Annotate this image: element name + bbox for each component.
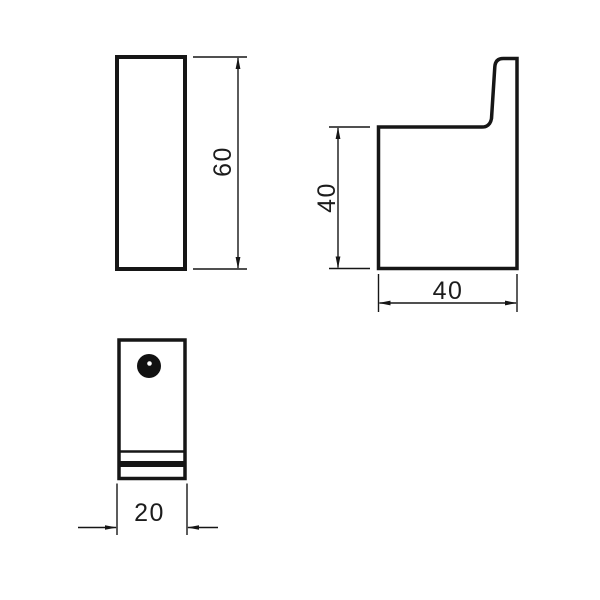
arrowhead-up-icon <box>236 57 241 69</box>
arrowhead-left-icon <box>379 301 391 306</box>
mounting-hole-center <box>147 361 152 366</box>
dimension-label-side-height: 40 <box>313 182 341 213</box>
front-view-outline <box>117 57 185 269</box>
bottom-width-dimension: 20 <box>78 484 218 536</box>
drawing-svg: 60 40 40 <box>0 0 600 600</box>
side-depth-dimension: 40 <box>379 274 518 312</box>
arrowhead-right-icon <box>105 525 117 529</box>
side-view-outline <box>379 59 518 269</box>
arrowhead-right-icon <box>505 301 517 306</box>
side-view: 40 40 <box>313 59 517 313</box>
arrowhead-left-icon <box>187 525 199 529</box>
arrowhead-down-icon <box>236 257 241 269</box>
arrowhead-down-icon <box>336 257 341 269</box>
side-height-dimension: 40 <box>313 127 370 269</box>
front-height-dimension: 60 <box>193 57 247 269</box>
dimension-label-bottom-width: 20 <box>134 499 165 527</box>
dimension-label-front-height: 60 <box>209 146 237 177</box>
dimension-label-side-depth: 40 <box>433 277 464 305</box>
arrowhead-up-icon <box>336 127 341 139</box>
bottom-view: 20 <box>78 340 218 535</box>
front-view: 60 <box>117 57 247 269</box>
technical-drawing: 60 40 40 <box>0 0 600 600</box>
mounting-hole <box>137 354 161 378</box>
